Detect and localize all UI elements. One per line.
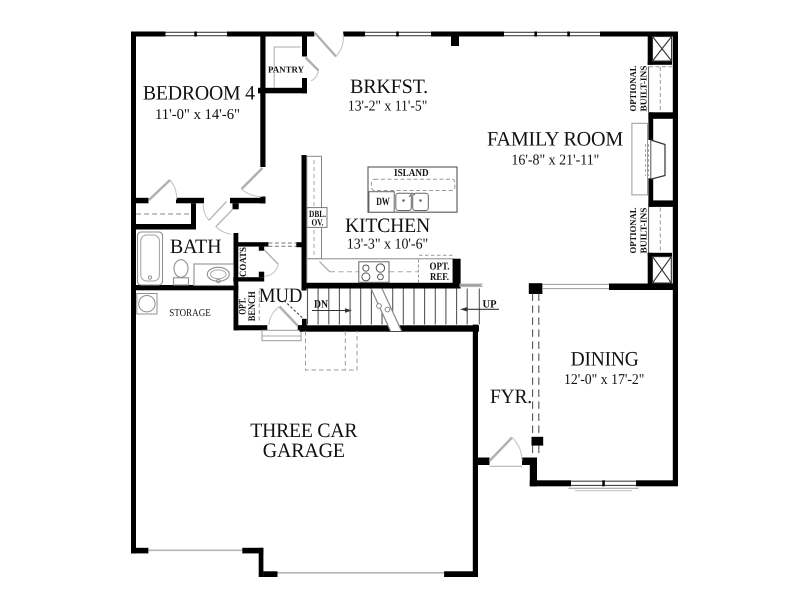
svg-text:OV.: OV. — [312, 219, 324, 229]
svg-text:DINING: DINING — [571, 349, 639, 371]
svg-text:KITCHEN: KITCHEN — [345, 215, 430, 237]
svg-text:REF.: REF. — [430, 272, 449, 283]
svg-text:GARAGE: GARAGE — [263, 440, 345, 462]
svg-text:FAMILY ROOM: FAMILY ROOM — [487, 129, 623, 151]
svg-text:16'-8" x 21'-11": 16'-8" x 21'-11" — [511, 153, 599, 169]
svg-text:11'-0" x 14'-6": 11'-0" x 14'-6" — [155, 107, 240, 123]
svg-text:BUILT-INS: BUILT-INS — [638, 66, 648, 112]
svg-text:OPTIONAL: OPTIONAL — [628, 66, 638, 112]
svg-text:13'-2" x 11'-5": 13'-2" x 11'-5" — [348, 99, 428, 115]
svg-text:OPTIONAL: OPTIONAL — [628, 208, 638, 254]
svg-text:UP: UP — [483, 299, 497, 311]
svg-text:ISLAND: ISLAND — [394, 168, 429, 179]
svg-text:STORAGE: STORAGE — [169, 308, 211, 319]
svg-text:DW: DW — [376, 196, 390, 208]
svg-text:13'-3" x 10'-6": 13'-3" x 10'-6" — [347, 237, 429, 253]
svg-text:MUD: MUD — [259, 285, 303, 307]
svg-text:OPT.: OPT. — [430, 262, 450, 273]
svg-text:BENCH: BENCH — [247, 291, 258, 321]
svg-text:PANTRY: PANTRY — [268, 65, 304, 75]
svg-text:BEDROOM 4: BEDROOM 4 — [143, 83, 255, 105]
svg-text:BATH: BATH — [170, 236, 222, 258]
svg-text:DN: DN — [314, 299, 328, 311]
svg-text:FYR.: FYR. — [490, 386, 532, 408]
svg-text:BRKFST.: BRKFST. — [350, 76, 428, 98]
svg-text:THREE CAR: THREE CAR — [250, 420, 357, 442]
svg-text:BUILT-INS: BUILT-INS — [638, 208, 648, 254]
svg-text:COATS: COATS — [239, 247, 249, 277]
svg-text:12'-0" x 17'-2": 12'-0" x 17'-2" — [564, 372, 645, 388]
